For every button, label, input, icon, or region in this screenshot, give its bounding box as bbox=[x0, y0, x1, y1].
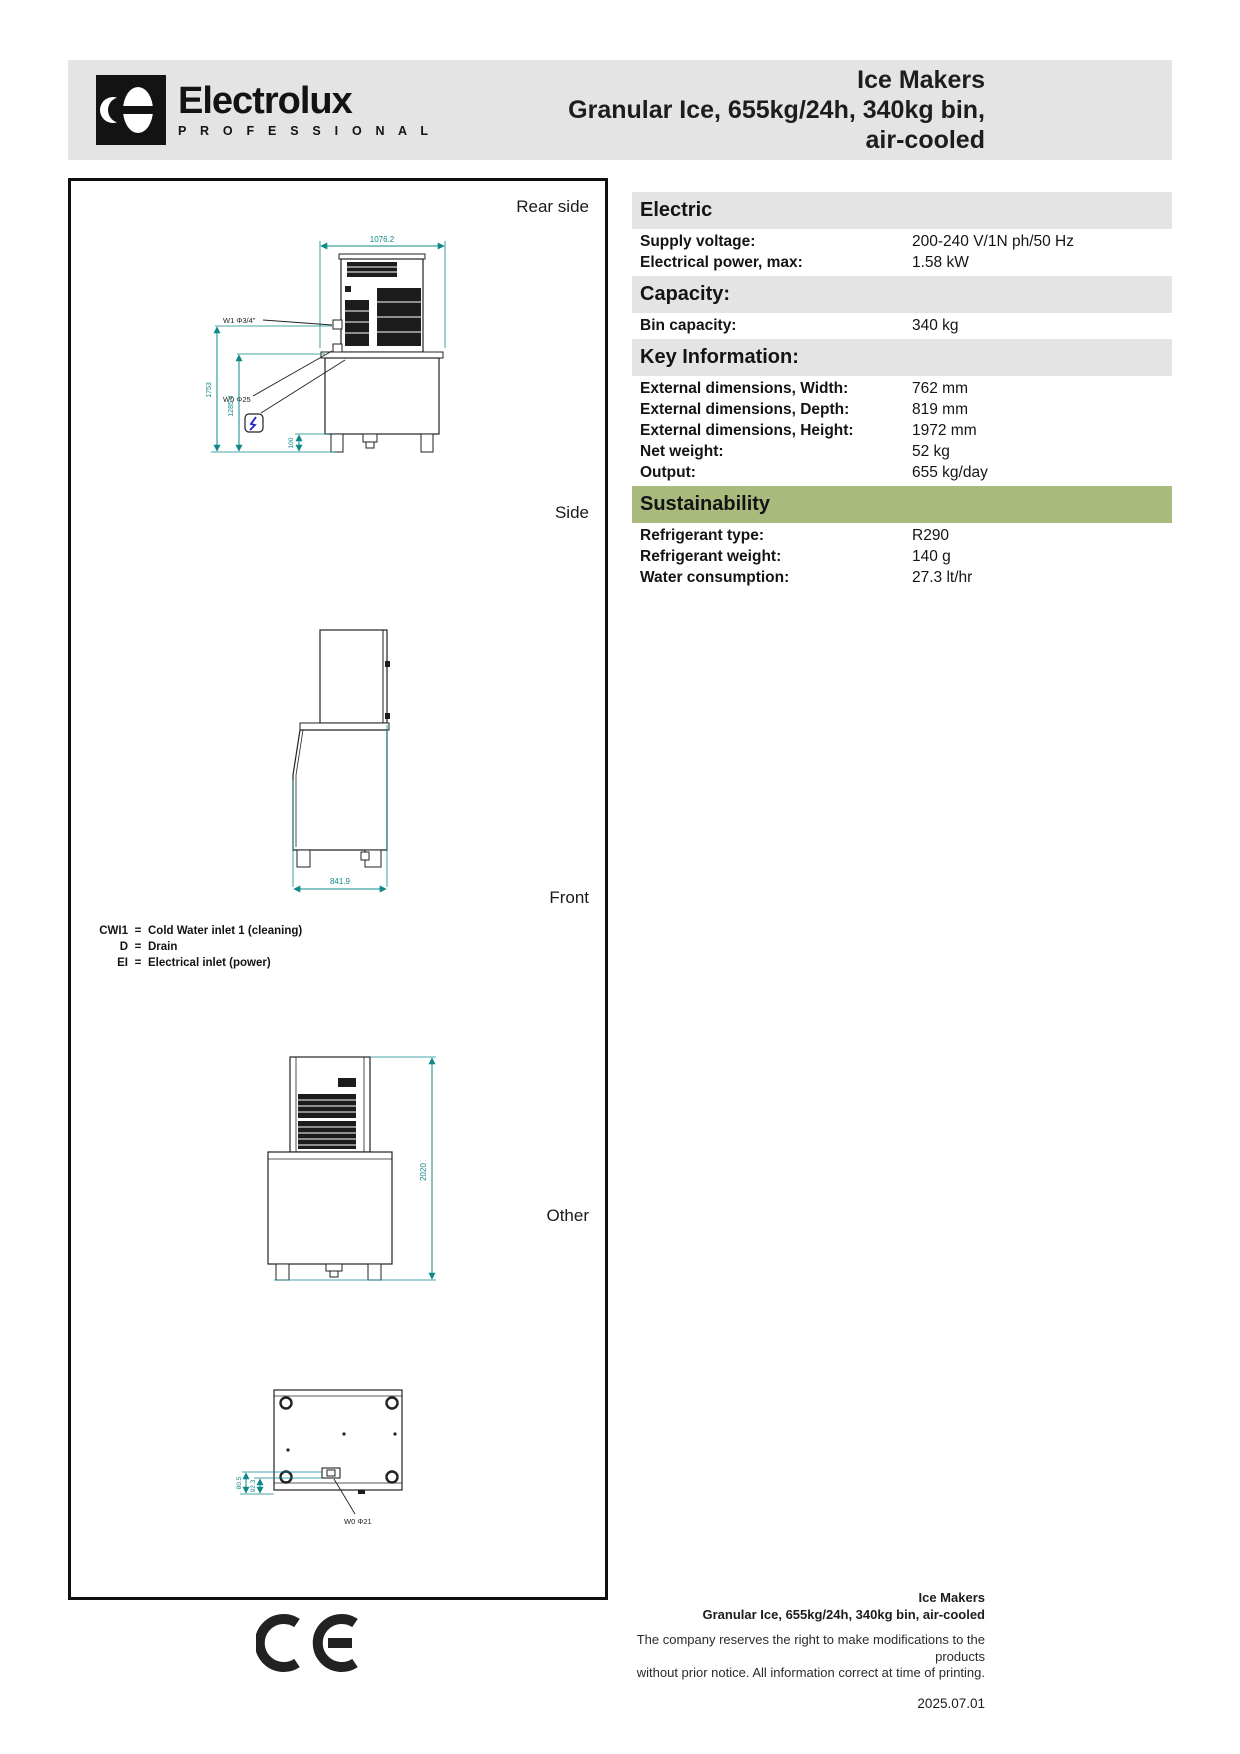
footer-disclaimer-line2: without prior notice. All information co… bbox=[585, 1665, 985, 1682]
spec-label: Refrigerant weight: bbox=[640, 548, 912, 566]
header-band: Electrolux P R O F E S S I O N A L Ice M… bbox=[68, 60, 1172, 160]
spec-value: 655 kg/day bbox=[912, 464, 1172, 482]
view-label-rear: Rear side bbox=[516, 197, 589, 217]
spec-value: 200-240 V/1N ph/50 Hz bbox=[912, 233, 1172, 251]
legend-desc: Drain bbox=[148, 941, 302, 953]
label-other-w0: W0 Φ21 bbox=[344, 1517, 372, 1526]
view-label-other: Other bbox=[546, 1206, 589, 1226]
spec-value: 52 kg bbox=[912, 443, 1172, 461]
label-w1-inlet: W1 Φ3/4" bbox=[223, 316, 256, 325]
spec-label: External dimensions, Height: bbox=[640, 422, 912, 440]
table-row: External dimensions, Height: 1972 mm bbox=[640, 420, 1172, 441]
legend-eq: = bbox=[128, 925, 148, 937]
electrolux-logo-icon bbox=[96, 75, 166, 145]
ce-mark-icon bbox=[256, 1612, 368, 1674]
legend-abbr: EI bbox=[86, 957, 128, 969]
electrical-inlet-icon bbox=[245, 414, 263, 432]
connection-legend: CWI1 = Cold Water inlet 1 (cleaning) D =… bbox=[86, 925, 302, 969]
title-line-2: Granular Ice, 655kg/24h, 340kg bin, bbox=[568, 95, 985, 125]
spec-label: Electrical power, max: bbox=[640, 254, 912, 272]
spec-label: External dimensions, Width: bbox=[640, 380, 912, 398]
section-heading-electric: Electric bbox=[632, 192, 1172, 229]
spec-label: Output: bbox=[640, 464, 912, 482]
spec-label: External dimensions, Depth: bbox=[640, 401, 912, 419]
legend-eq: = bbox=[128, 957, 148, 969]
spec-label: Refrigerant type: bbox=[640, 527, 912, 545]
view-label-side: Side bbox=[555, 503, 589, 523]
spec-value: 340 kg bbox=[912, 317, 1172, 335]
spec-table: Electric Supply voltage: 200-240 V/1N ph… bbox=[632, 192, 1172, 591]
spec-value: R290 bbox=[912, 527, 1172, 545]
spec-value: 1972 mm bbox=[912, 422, 1172, 440]
table-row: Electrical power, max: 1.58 kW bbox=[640, 252, 1172, 273]
spec-value: 1.58 kW bbox=[912, 254, 1172, 272]
table-row: External dimensions, Width: 762 mm bbox=[640, 378, 1172, 399]
brand-name: Electrolux bbox=[178, 81, 433, 121]
spec-label: Net weight: bbox=[640, 443, 912, 461]
spec-value: 762 mm bbox=[912, 380, 1172, 398]
spec-value: 27.3 lt/hr bbox=[912, 569, 1172, 587]
title-line-3: air-cooled bbox=[568, 125, 985, 155]
table-row: Refrigerant weight: 140 g bbox=[640, 546, 1172, 567]
spec-label: Water consumption: bbox=[640, 569, 912, 587]
footer: Ice Makers Granular Ice, 655kg/24h, 340k… bbox=[585, 1590, 985, 1711]
spec-label: Supply voltage: bbox=[640, 233, 912, 251]
spec-value: 140 g bbox=[912, 548, 1172, 566]
table-row: External dimensions, Depth: 819 mm bbox=[640, 399, 1172, 420]
view-label-front: Front bbox=[549, 888, 589, 908]
rear-view-drawing: 1076.2 W1 Φ3/4" W0 Φ25 1753 1285.4 100 bbox=[195, 230, 505, 520]
legend-abbr: D bbox=[86, 941, 128, 953]
footer-date: 2025.07.01 bbox=[585, 1696, 985, 1711]
dim-rear-height-bin: 1285.4 bbox=[228, 395, 235, 417]
table-row: Refrigerant type: R290 bbox=[640, 525, 1172, 546]
dim-rear-height-total: 1753 bbox=[206, 382, 213, 398]
table-row: Bin capacity: 340 kg bbox=[640, 315, 1172, 336]
legend-abbr: CWI1 bbox=[86, 925, 128, 937]
legend-eq: = bbox=[128, 941, 148, 953]
front-view-drawing: 2020 bbox=[250, 1042, 450, 1302]
dim-rear-width: 1076.2 bbox=[370, 235, 395, 244]
brand-subtitle: P R O F E S S I O N A L bbox=[178, 124, 433, 138]
footer-product-line1: Ice Makers bbox=[585, 1590, 985, 1607]
page-title: Ice Makers Granular Ice, 655kg/24h, 340k… bbox=[568, 65, 985, 155]
spec-value: 819 mm bbox=[912, 401, 1172, 419]
section-heading-capacity: Capacity: bbox=[632, 276, 1172, 313]
dim-side-depth: 841.9 bbox=[330, 877, 351, 886]
other-view-drawing: 80.5 92.3 W0 Φ21 bbox=[222, 1382, 472, 1532]
spec-label: Bin capacity: bbox=[640, 317, 912, 335]
footer-product-line2: Granular Ice, 655kg/24h, 340kg bin, air-… bbox=[585, 1607, 985, 1624]
dim-front-height: 2020 bbox=[419, 1163, 428, 1181]
side-view-drawing: 841.9 bbox=[285, 575, 415, 910]
legend-desc: Cold Water inlet 1 (cleaning) bbox=[148, 925, 302, 937]
table-row: Water consumption: 27.3 lt/hr bbox=[640, 567, 1172, 588]
table-row: Net weight: 52 kg bbox=[640, 441, 1172, 462]
dim-other-b: 92.3 bbox=[250, 1479, 257, 1492]
table-row: Supply voltage: 200-240 V/1N ph/50 Hz bbox=[640, 231, 1172, 252]
section-heading-key-information: Key Information: bbox=[632, 339, 1172, 376]
title-line-1: Ice Makers bbox=[568, 65, 985, 95]
section-heading-sustainability: Sustainability bbox=[632, 486, 1172, 523]
legend-desc: Electrical inlet (power) bbox=[148, 957, 302, 969]
table-row: Output: 655 kg/day bbox=[640, 462, 1172, 483]
dim-other-a: 80.5 bbox=[236, 1476, 243, 1489]
electrolux-logo: Electrolux P R O F E S S I O N A L bbox=[96, 75, 433, 145]
footer-disclaimer-line1: The company reserves the right to make m… bbox=[585, 1632, 985, 1665]
dim-rear-leg: 100 bbox=[288, 437, 295, 448]
